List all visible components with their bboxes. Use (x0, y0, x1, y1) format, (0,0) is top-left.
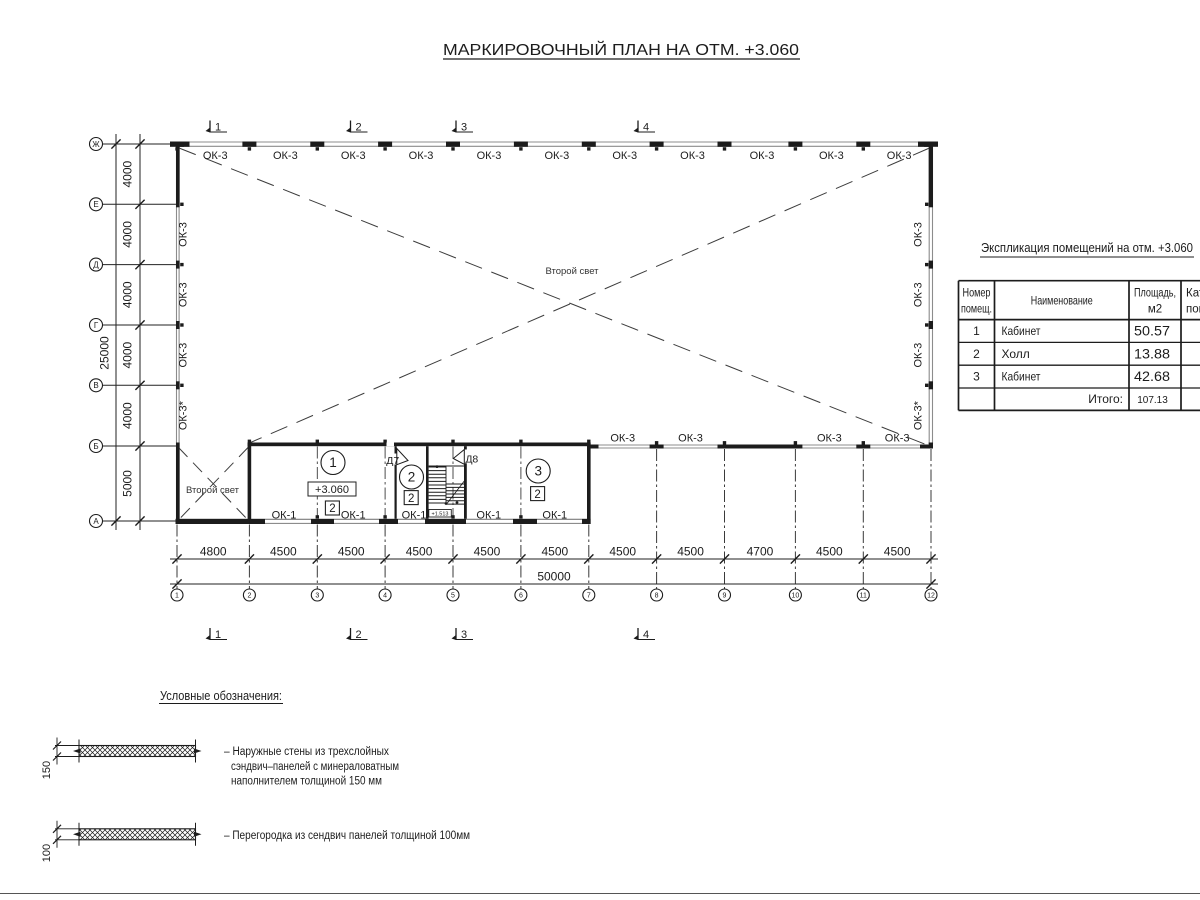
svg-text:3: 3 (973, 370, 980, 384)
svg-text:25000: 25000 (98, 336, 112, 370)
svg-text:2: 2 (973, 347, 980, 361)
svg-text:1: 1 (973, 324, 980, 338)
svg-text:помещения: помещения (1186, 304, 1200, 316)
svg-text:8: 8 (655, 593, 659, 600)
svg-text:ОК-3: ОК-3 (885, 433, 910, 445)
svg-text:2: 2 (355, 122, 361, 134)
svg-text:4500: 4500 (816, 545, 843, 559)
svg-text:Категория: Категория (1186, 288, 1200, 300)
svg-text:Условные обозначения:: Условные обозначения: (160, 689, 282, 703)
svg-text:150: 150 (41, 761, 53, 779)
svg-text:100: 100 (41, 844, 53, 862)
svg-text:Итого:: Итого: (1088, 392, 1123, 406)
svg-text:Второй свет: Второй свет (545, 266, 599, 277)
svg-text:Экспликация помещений на отм.: Экспликация помещений на отм. +3.060 (981, 240, 1193, 255)
svg-text:4500: 4500 (474, 545, 501, 559)
svg-text:5: 5 (451, 593, 455, 600)
svg-text:1: 1 (329, 455, 337, 470)
svg-text:2: 2 (355, 629, 361, 641)
svg-text:4800: 4800 (200, 545, 227, 559)
svg-text:ОК-3: ОК-3 (178, 222, 190, 247)
svg-text:1: 1 (215, 629, 221, 641)
svg-text:4: 4 (383, 593, 387, 600)
svg-text:ОК-3: ОК-3 (750, 150, 775, 162)
svg-text:4000: 4000 (121, 221, 135, 248)
svg-text:4500: 4500 (609, 545, 636, 559)
svg-text:– Перегородка из сендвич пане: – Перегородка из сендвич панелей толщино… (224, 830, 470, 842)
svg-text:4500: 4500 (677, 545, 704, 559)
svg-text:ОК-3: ОК-3 (203, 150, 228, 162)
svg-text:10: 10 (792, 593, 800, 600)
svg-text:Кабинет: Кабинет (1002, 324, 1041, 338)
svg-text:ОК-3: ОК-3 (817, 433, 842, 445)
svg-text:42.68: 42.68 (1134, 369, 1170, 384)
svg-text:Д: Д (93, 260, 99, 269)
svg-text:помещ.: помещ. (961, 304, 992, 316)
svg-text:6: 6 (519, 593, 523, 600)
svg-text:ОК-3: ОК-3 (544, 150, 569, 162)
svg-text:ОК-3: ОК-3 (678, 433, 703, 445)
svg-text:4000: 4000 (121, 402, 135, 429)
svg-text:4500: 4500 (541, 545, 568, 559)
svg-text:ОК-3: ОК-3 (913, 222, 925, 247)
svg-text:ОК-1: ОК-1 (402, 510, 427, 522)
svg-text:Кабинет: Кабинет (1002, 370, 1041, 384)
svg-text:ОК-3: ОК-3 (610, 433, 635, 445)
svg-text:4700: 4700 (747, 545, 774, 559)
svg-text:107.13: 107.13 (1137, 395, 1168, 406)
svg-text:ОК-3: ОК-3 (819, 150, 844, 162)
svg-text:Второй свет: Второй свет (186, 485, 240, 496)
svg-text:2: 2 (534, 489, 540, 501)
svg-text:ОК-3: ОК-3 (612, 150, 637, 162)
svg-text:4500: 4500 (270, 545, 297, 559)
svg-text:3: 3 (461, 122, 467, 134)
svg-text:м2: м2 (1148, 304, 1162, 316)
svg-text:50000: 50000 (537, 570, 571, 584)
svg-text:Г: Г (94, 321, 99, 330)
svg-text:Наименование: Наименование (1031, 294, 1093, 308)
svg-text:4: 4 (643, 122, 649, 134)
svg-text:4500: 4500 (406, 545, 433, 559)
svg-text:Д8: Д8 (465, 454, 478, 466)
svg-text:4500: 4500 (884, 545, 911, 559)
svg-text:Холл: Холл (1002, 347, 1030, 361)
svg-text:наполнителем толщиной 150 мм: наполнителем толщиной 150 мм (231, 775, 382, 787)
svg-text:4: 4 (643, 629, 649, 641)
svg-text:– Наружные стены из трехслойн: – Наружные стены из трехслойных (224, 746, 389, 758)
svg-text:4000: 4000 (121, 341, 135, 368)
svg-text:ОК-3: ОК-3 (178, 282, 190, 307)
svg-text:ОК-3: ОК-3 (913, 343, 925, 368)
svg-text:ОК-3*: ОК-3* (913, 400, 925, 430)
svg-text:ОК-3: ОК-3 (887, 150, 912, 162)
svg-text:ОК-1: ОК-1 (476, 510, 501, 522)
svg-text:4000: 4000 (121, 160, 135, 187)
svg-text:сэндвич–панелей с минераловатн: сэндвич–панелей с минераловатным (231, 761, 399, 773)
svg-text:ОК-3: ОК-3 (477, 150, 502, 162)
svg-text:2: 2 (408, 493, 414, 505)
svg-text:2: 2 (408, 470, 416, 485)
svg-text:50.57: 50.57 (1134, 324, 1170, 339)
svg-text:3: 3 (461, 629, 467, 641)
svg-text:+1.513: +1.513 (432, 512, 449, 518)
svg-text:2: 2 (247, 593, 251, 600)
svg-text:ОК-3: ОК-3 (680, 150, 705, 162)
svg-text:ОК-3*: ОК-3* (178, 400, 190, 430)
svg-text:Д7: Д7 (386, 455, 399, 467)
svg-text:3: 3 (315, 593, 319, 600)
svg-text:ОК-1: ОК-1 (272, 510, 297, 522)
svg-text:3: 3 (534, 464, 542, 479)
svg-text:11: 11 (860, 593, 867, 600)
svg-text:ОК-3: ОК-3 (409, 150, 434, 162)
svg-text:1: 1 (215, 122, 221, 134)
svg-text:7: 7 (587, 593, 591, 600)
svg-text:ОК-1: ОК-1 (542, 510, 567, 522)
svg-text:Е: Е (93, 200, 98, 209)
svg-text:Б: Б (93, 442, 98, 451)
svg-text:5000: 5000 (121, 470, 135, 497)
svg-text:ОК-3: ОК-3 (341, 150, 366, 162)
svg-text:Площадь,: Площадь, (1134, 288, 1176, 300)
svg-text:9: 9 (723, 593, 727, 600)
svg-text:ОК-3: ОК-3 (178, 343, 190, 368)
svg-text:4000: 4000 (121, 281, 135, 308)
svg-text:ОК-1: ОК-1 (341, 510, 366, 522)
svg-text:В: В (93, 381, 98, 390)
svg-text:+3.060: +3.060 (315, 484, 349, 496)
svg-text:2: 2 (329, 503, 335, 515)
svg-text:4500: 4500 (338, 545, 365, 559)
svg-text:Ж: Ж (92, 140, 100, 149)
svg-text:1: 1 (175, 593, 179, 600)
svg-text:12: 12 (927, 593, 935, 600)
svg-text:А: А (93, 517, 99, 526)
svg-text:ОК-3: ОК-3 (913, 282, 925, 307)
svg-text:МАРКИРОВОЧНЫЙ ПЛАН НА ОТМ. +3.: МАРКИРОВОЧНЫЙ ПЛАН НА ОТМ. +3.060 (443, 40, 799, 59)
svg-text:13.88: 13.88 (1134, 346, 1170, 361)
svg-text:Номер: Номер (963, 288, 991, 300)
svg-text:ОК-3: ОК-3 (273, 150, 298, 162)
